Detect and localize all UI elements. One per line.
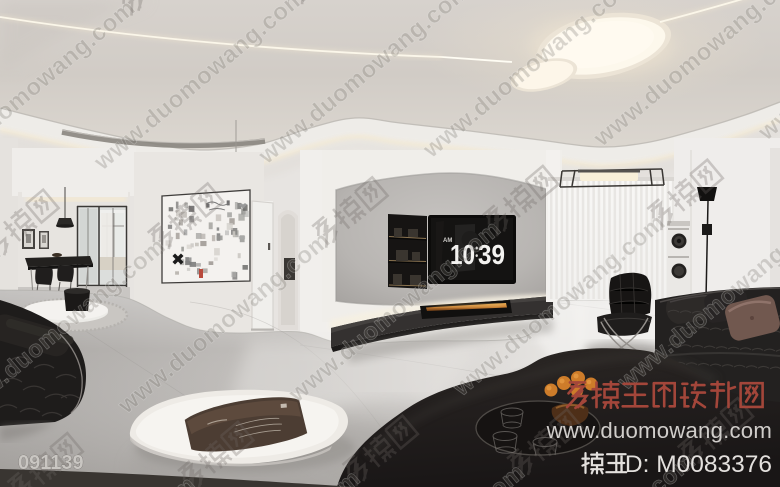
svg-text:www.duomowang.com: www.duomowang.com [546,418,772,443]
svg-text:ID: M0083376: ID: M0083376 [618,451,772,478]
svg-text:091139: 091139 [18,452,84,474]
